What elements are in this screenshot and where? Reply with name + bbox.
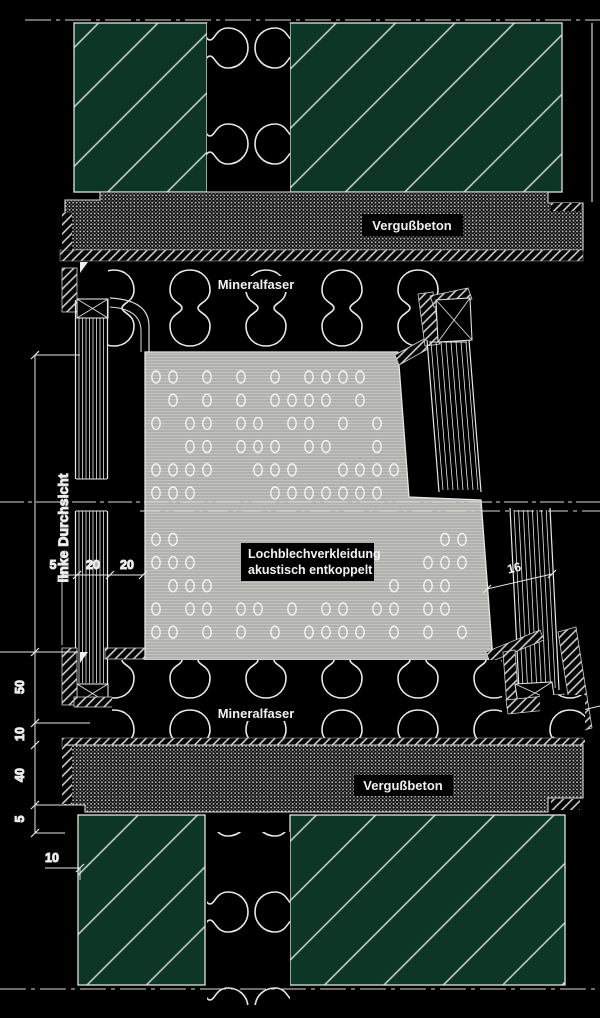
drawing-canvas: Vergußbeton Mineralfaser (0, 0, 600, 1018)
lochblech-label-line2: akustisch entkoppelt (248, 563, 373, 577)
dim-5: 5 (13, 815, 27, 822)
facade-section-drawing: Vergußbeton Mineralfaser (0, 0, 600, 1018)
mineral-fiber-band-top: Mineralfaser (80, 262, 462, 350)
frame-profile-hatch (62, 268, 77, 312)
concrete-slab-bottom (78, 815, 565, 1005)
panel-label: Lochblechverkleidung akustisch entkoppel… (241, 543, 381, 581)
grout-band-bottom: Vergußbeton (62, 738, 583, 812)
dim-20-glass-1: 20 (86, 558, 100, 572)
steel-edge-hatch (62, 746, 72, 804)
grout-band-top: Vergußbeton (60, 192, 583, 261)
vergussbeton-top-label: Vergußbeton (372, 218, 452, 233)
dim-50: 50 (13, 680, 27, 694)
steel-edge-hatch (551, 203, 581, 211)
dim-5-glass: 5 (50, 558, 57, 572)
lochblech-label-line1: Lochblechverkleidung (248, 547, 381, 561)
steel-edge-hatch (60, 250, 583, 261)
glazing-block (77, 299, 108, 318)
joint-insulation-bottom (207, 832, 290, 1005)
joint-insulation-top (207, 23, 290, 192)
dim-40: 40 (13, 768, 27, 782)
vergussbeton-bottom-label: Vergußbeton (363, 778, 443, 793)
dim-20-glass-2: 20 (120, 558, 134, 572)
dim-10: 10 (13, 727, 27, 741)
linke-durchsicht-label: linke Durchsicht (55, 473, 71, 582)
steel-edge-hatch (62, 213, 72, 250)
steel-edge-hatch (551, 799, 580, 810)
glass-break-symbol (70, 479, 114, 511)
concrete-slab-top (74, 23, 592, 202)
mineralfaser-top-label: Mineralfaser (218, 277, 295, 292)
mineralfaser-bottom-label: Mineralfaser (218, 706, 295, 721)
glazing-block (436, 298, 472, 342)
dim-10-horizontal: 10 (45, 851, 59, 865)
